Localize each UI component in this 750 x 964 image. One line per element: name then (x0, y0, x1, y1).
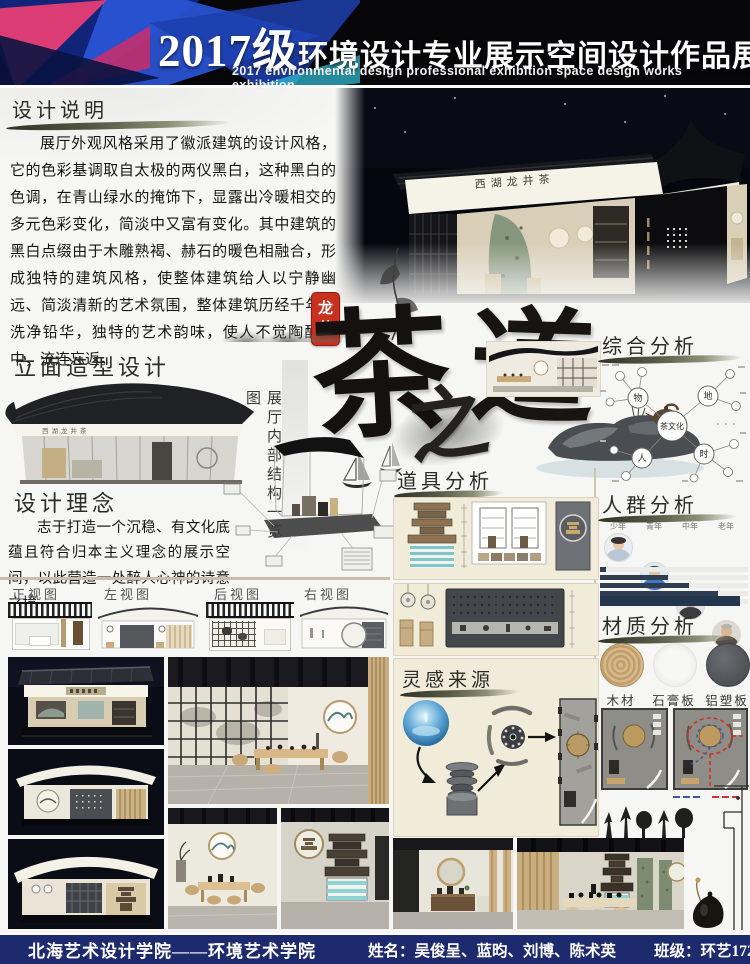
footer-bar: 北海艺术设计学院——环境艺术学院 姓名：吴俊呈、蓝昀、刘博、陈术英 班级：环艺1… (0, 933, 750, 964)
exploded-axonometric (222, 430, 400, 578)
interior-render-small-1 (168, 808, 277, 929)
material-navy-bar (600, 596, 740, 606)
mindmap-center-label: 茶文化 (660, 421, 684, 431)
horizontal-divider (0, 577, 390, 580)
description-title: 设计说明 (12, 94, 108, 123)
facade-sign-text: 西湖龙井茶 (42, 426, 90, 435)
ink-bag-drawing (686, 876, 728, 930)
footer-names: 姓名：吴俊呈、蓝昀、刘博、陈术英 (368, 939, 616, 961)
mindmap-node-time: 时 (699, 448, 708, 459)
mini-interior-render (487, 342, 600, 396)
exterior-render-night-3 (8, 839, 164, 929)
inspiration-title: 灵感来源 (402, 665, 494, 692)
crowd-group-label-2: 中年 (676, 521, 704, 532)
interior-render-large (168, 657, 389, 804)
material-label-wood: 木材 (596, 690, 646, 709)
mindmap-node-place: 地 (703, 390, 712, 401)
ink-trees-silhouette (596, 804, 700, 838)
inspiration-panel: 灵感来源 (393, 658, 599, 837)
facade-render: 西湖龙井茶 (2, 376, 258, 486)
floor-plan-plain (601, 708, 668, 790)
elevation-back-drawing (206, 600, 294, 652)
exhibition-poster: 2017级环境设计专业展示空间设计作品展 2017 environmental … (0, 0, 750, 964)
avatar-youth (604, 533, 633, 562)
elevation-front-drawing (8, 600, 92, 652)
props-panel-2 (393, 583, 599, 656)
inspiration-diagram (394, 695, 598, 833)
elevation-right-drawing (298, 598, 390, 652)
material-label-aluminum: 铝塑板 (700, 690, 750, 709)
exterior-render-night-2 (8, 749, 164, 835)
crowd-group-label-1: 青年 (640, 521, 668, 532)
analysis-mindmap: 茶文化 物 地 人 时 (598, 362, 748, 484)
interior-render-small-2 (281, 808, 389, 929)
header-banner: 2017级环境设计专业展示空间设计作品展 2017 environmental … (0, 0, 750, 88)
elevation-left-drawing (96, 598, 200, 652)
mindmap-node-object: 物 (633, 392, 642, 403)
crowd-group-label-0: 少年 (604, 521, 632, 532)
crowd-bar-row (600, 575, 748, 580)
material-swatch-gypsum (653, 643, 697, 687)
crowd-group-label-3: 老年 (712, 521, 740, 532)
material-swatch-wood (600, 643, 644, 687)
crowd-bar-row (600, 567, 748, 572)
crowd-bar-row (600, 583, 748, 588)
concept-title: 设计理念 (14, 486, 118, 518)
interior-render-counter (393, 838, 513, 929)
props-panel-1 (393, 497, 599, 580)
footer-school: 北海艺术设计学院——环境艺术学院 (28, 937, 316, 962)
footer-class: 班级：环艺1720班 (654, 939, 750, 961)
ink-trees-top (222, 326, 342, 342)
analysis-title: 综合分析 (602, 330, 698, 359)
material-swatch-aluminum (706, 643, 750, 687)
interior-render-wide (517, 838, 684, 929)
mindmap-node-people: 人 (637, 453, 646, 463)
material-label-gypsum: 石膏板 (647, 690, 701, 709)
exterior-render-night-1 (8, 657, 164, 745)
